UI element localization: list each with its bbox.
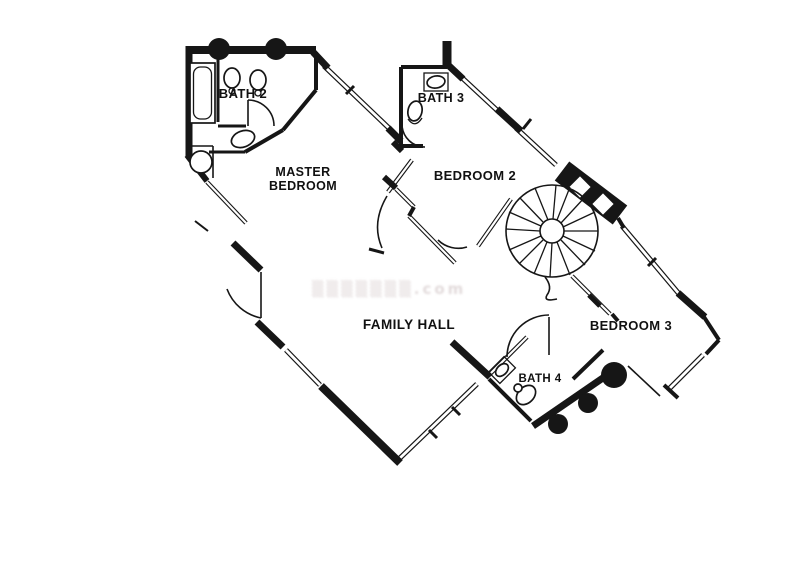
window-walls <box>207 66 703 458</box>
sink-icon <box>426 75 446 90</box>
floor-plan: ▒▒▒▒▒▒▒.com BATH 2 MASTER BEDROOM BATH 3… <box>0 0 800 566</box>
toilet-tank <box>514 384 522 392</box>
chimney-icon <box>562 171 620 215</box>
room-label-master-1: MASTER <box>275 165 330 179</box>
room-label-bedroom-3: BEDROOM 3 <box>590 318 672 333</box>
column-icon <box>578 393 598 413</box>
door-swing-icon <box>227 289 261 318</box>
column-icon <box>601 362 627 388</box>
room-label-bath-2: BATH 2 <box>219 86 267 101</box>
room-labels: BATH 2 MASTER BEDROOM BATH 3 BEDROOM 2 B… <box>219 86 672 385</box>
door-swing-icon <box>378 196 387 248</box>
sink-icon <box>224 68 240 88</box>
room-label-bath-4: BATH 4 <box>518 373 561 385</box>
column-icon <box>548 414 568 434</box>
sink-icon <box>493 361 511 379</box>
bath2-fixtures <box>189 63 266 178</box>
floor-plan-page: ▒▒▒▒▒▒▒.com BATH 2 MASTER BEDROOM BATH 3… <box>0 0 800 566</box>
watermark: ▒▒▒▒▒▒▒.com <box>312 280 466 298</box>
door-swing-icon <box>248 100 274 126</box>
shower-icon <box>190 151 212 173</box>
door-swing-icon <box>402 125 425 147</box>
room-label-family-hall: FAMILY HALL <box>363 317 455 332</box>
room-label-master-2: BEDROOM <box>269 179 337 193</box>
room-label-bedroom-2: BEDROOM 2 <box>434 168 516 183</box>
room-label-bath-3: BATH 3 <box>418 91 465 105</box>
